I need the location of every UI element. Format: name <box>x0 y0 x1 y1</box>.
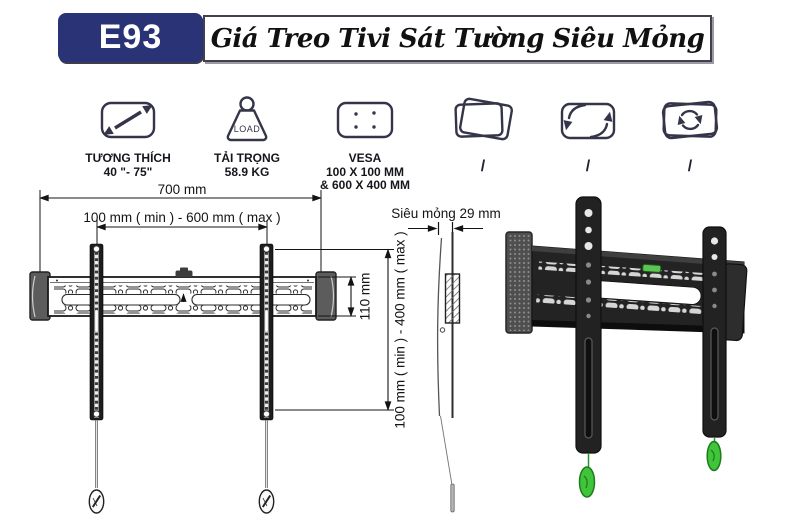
vesa-height-label: 100 mm ( min ) - 400 mm ( max ) <box>393 231 408 428</box>
product-title: Giá Treo Tivi Sát Tường Siêu Mỏng <box>211 24 705 54</box>
vesa-plate-icon <box>335 96 395 144</box>
rail-height-label: 110 mm <box>358 273 373 321</box>
render-arm-right <box>703 227 726 471</box>
pull-cord-handle-side <box>451 484 454 512</box>
load-icon-text: LOAD <box>234 124 261 134</box>
feature-label: VESA <box>320 152 410 166</box>
feature-rotate: / <box>625 96 755 176</box>
side-view: Siêu mỏng 29 mm <box>391 206 501 512</box>
feature-load: LOAD TẢI TRỌNG 58.9 KG <box>182 96 312 179</box>
model-code: E93 <box>99 18 163 57</box>
rotate-screen-icon <box>656 96 724 144</box>
feature-value: / <box>586 158 590 176</box>
arm-spacing-label: 100 mm ( min ) - 600 mm ( max ) <box>83 210 280 225</box>
technical-drawing: 700 mm 100 mm ( min ) - 600 mm ( max ) <box>0 0 800 523</box>
product-infographic: 700 mm 100 mm ( min ) - 600 mm ( max ) <box>0 0 800 523</box>
feature-value: 100 X 100 MM <box>320 166 410 180</box>
render-3d <box>506 197 747 497</box>
feature-value: & 600 X 400 MM <box>320 179 410 193</box>
dimension-total-width: 700 mm <box>40 182 321 280</box>
bracket-arm-left <box>89 244 103 513</box>
swivel-screen-icon <box>450 96 516 144</box>
weight-icon: LOAD <box>217 96 277 144</box>
profile-thickness-label: Siêu mỏng 29 mm <box>391 206 501 221</box>
feature-compatibility: TƯƠNG THÍCH 40 "- 75" <box>63 96 193 179</box>
wall-rail <box>30 268 336 321</box>
rail-cross-section <box>446 274 460 323</box>
feature-value: 58.9 KG <box>214 166 280 180</box>
feature-value: / <box>688 158 692 176</box>
feature-label: TẢI TRỌNG <box>214 152 280 166</box>
total-width-label: 700 mm <box>158 182 207 197</box>
feature-label: TƯƠNG THÍCH <box>85 152 171 166</box>
tilt-arrows-icon <box>558 96 618 144</box>
front-view: 700 mm 100 mm ( min ) - 600 mm ( max ) <box>30 182 408 513</box>
bracket-arm-right <box>259 244 273 513</box>
render-arm-left <box>576 197 601 497</box>
feature-value: 40 "- 75" <box>85 166 171 180</box>
feature-vesa: VESA 100 X 100 MM & 600 X 400 MM <box>300 96 430 193</box>
screen-size-diagonal-icon <box>100 96 156 144</box>
title-box: Giá Treo Tivi Sát Tường Siêu Mỏng <box>203 15 712 62</box>
bubble-level-3d <box>643 264 661 272</box>
dimension-vesa-height: 100 mm ( min ) - 400 mm ( max ) <box>275 231 408 428</box>
model-badge: E93 <box>58 13 203 62</box>
feature-value: / <box>481 158 485 176</box>
dimension-arm-spacing: 100 mm ( min ) - 600 mm ( max ) <box>83 210 280 246</box>
